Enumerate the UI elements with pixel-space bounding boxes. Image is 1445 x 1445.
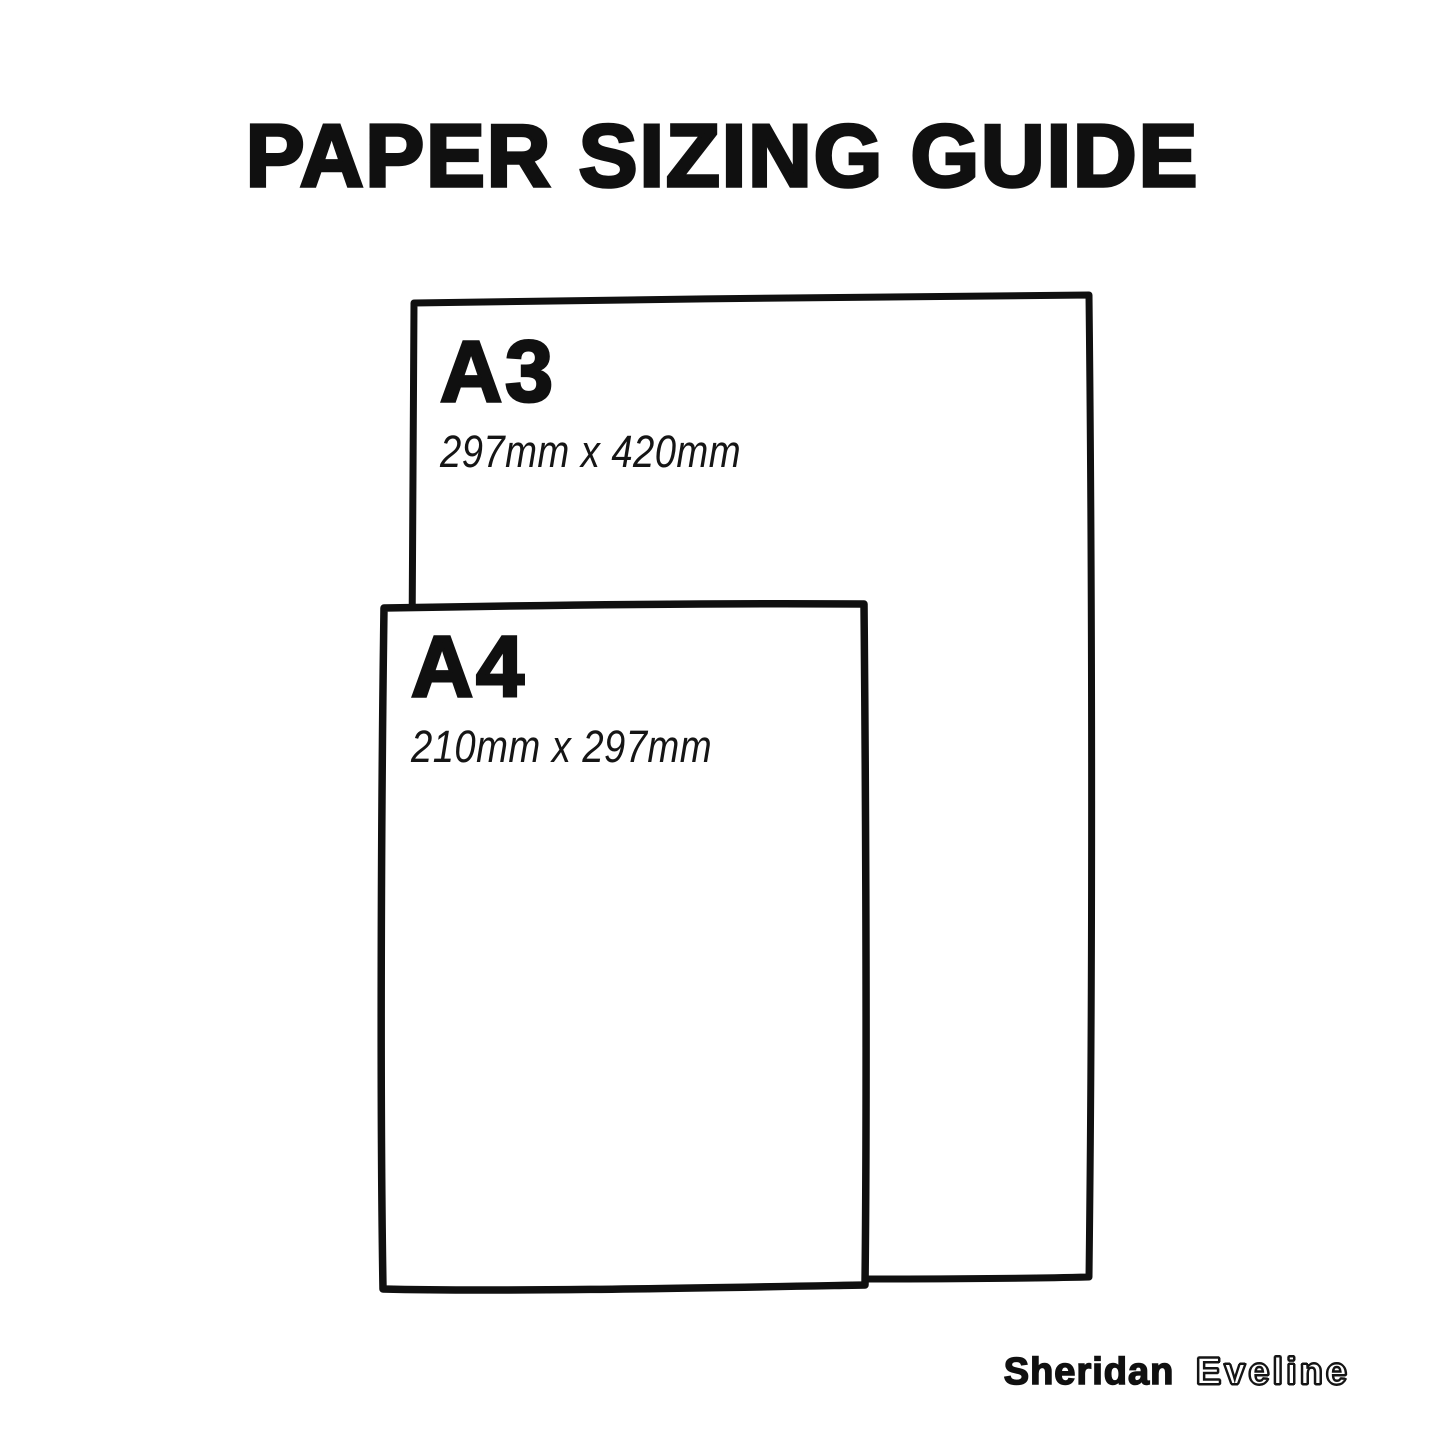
brand-signature: Sheridan Eveline (1004, 1353, 1350, 1391)
brand-last-name: Eveline (1196, 1351, 1350, 1393)
paper-sizing-guide-page: PAPER SIZING GUIDE A3 297mm x 420mm A4 2… (0, 0, 1445, 1445)
brand-first-name: Sheridan (1004, 1351, 1175, 1393)
paper-diagram (0, 0, 1445, 1445)
a4-paper-shape (381, 604, 866, 1290)
